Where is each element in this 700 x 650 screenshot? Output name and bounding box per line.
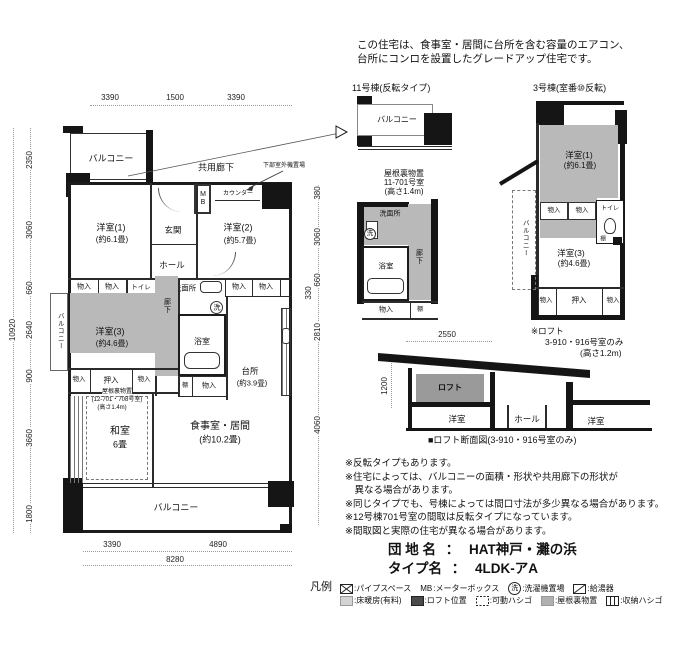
dim-left-total: 10920 — [9, 318, 17, 342]
kitchen-label: 台所 — [241, 367, 258, 376]
legend-movable-ladder: :可動ハシゴ — [476, 595, 532, 606]
legend-mb-key: MB — [420, 584, 432, 593]
wall — [63, 126, 83, 133]
japanese-room-label: 和室 — [110, 427, 130, 437]
corridor-label: 廊下 — [416, 249, 423, 265]
western3-size: (約4.6畳) — [558, 260, 590, 268]
wall — [90, 368, 91, 392]
attic-shade — [155, 276, 178, 376]
type-name-row: タイプ名 ： 4LDK-アA — [388, 560, 538, 578]
estate-name-value: HAT神戸・灘の浜 — [469, 542, 577, 557]
closet-label: 物入 — [540, 298, 553, 305]
wall — [545, 405, 547, 430]
note-line: ※間取図と実際の住宅が異なる場合があります。 — [345, 526, 552, 539]
wall — [536, 101, 624, 105]
wall — [150, 244, 196, 245]
shelf-label: 棚 — [600, 237, 606, 243]
entrance-label: 玄関 — [164, 226, 181, 235]
wall — [358, 149, 452, 150]
loft-note-1: ※ロフト — [531, 326, 564, 337]
closet-label: 物入 — [607, 298, 620, 305]
window-line — [83, 487, 268, 488]
wall — [68, 278, 292, 280]
separator: ： — [446, 561, 472, 576]
floor-heating-icon — [340, 596, 353, 606]
dim-bottom-total: 8280 — [165, 556, 185, 564]
dim-line-bottom-total — [83, 565, 292, 566]
note-line: 異なる場合があります。 — [345, 485, 458, 498]
balcony-side-label: バルコニー — [521, 219, 528, 257]
storage-ladder-icon — [606, 596, 619, 606]
wall — [613, 237, 622, 245]
dim-right-5: 2810 — [314, 322, 322, 342]
legend-mb-label: :メーターボックス — [433, 583, 499, 594]
legend-washer-label: :洗濯機置場 — [522, 583, 564, 594]
closet-label: 物入 — [73, 377, 86, 384]
wall — [408, 368, 412, 430]
wall — [226, 296, 228, 400]
hall-label: ホール — [159, 261, 185, 270]
closet-label: 物入 — [202, 383, 216, 390]
wall — [556, 287, 557, 315]
common-corridor-label: 共用廊下 — [198, 164, 234, 173]
loft-floor — [412, 402, 490, 407]
water-heater-icon — [573, 584, 586, 594]
wall — [507, 405, 509, 430]
wall — [536, 287, 624, 289]
pillar — [280, 524, 292, 533]
section-western2-label: 洋室 — [587, 417, 604, 426]
western3-label: 洋室(3) — [96, 328, 125, 337]
corridor-label: 廊下 — [164, 298, 171, 314]
wall — [362, 301, 438, 303]
dim-right-4: 330 — [305, 285, 313, 300]
movable-ladder-icon — [476, 596, 489, 606]
legend-ladder1-label: :可動ハシゴ — [490, 595, 532, 606]
wall — [566, 382, 573, 430]
wall — [225, 278, 226, 296]
legend-loft-position: :ロフト位置 — [411, 595, 467, 606]
dim-left-1: 2350 — [26, 150, 34, 170]
loft-label: ロフト — [438, 384, 462, 392]
estate-name-label: 団 地 名 — [388, 542, 436, 557]
header-note-line2: 台所にコンロを設置したグレードアップ住宅です。 — [357, 52, 597, 66]
dim-left-5: 900 — [26, 368, 34, 383]
washroom-label: 洗面所 — [380, 211, 401, 218]
pillar — [424, 113, 452, 145]
wall — [280, 278, 281, 296]
dim-right-2: 3060 — [314, 227, 322, 247]
dim-line-loft-height — [391, 360, 392, 408]
wall — [225, 296, 292, 297]
toilet-label: トイレ — [131, 285, 151, 292]
leader-line — [128, 132, 345, 176]
dim-loft-height: 1200 — [381, 376, 389, 396]
legend-washer-place: 洗 :洗濯機置場 — [508, 582, 564, 595]
washer-label: 洗 — [367, 231, 374, 238]
kitchen-counter — [281, 308, 291, 396]
window-line — [83, 483, 268, 484]
attic-note-2: (12-701・708号室) — [92, 397, 143, 403]
dim-left-7: 1800 — [26, 504, 34, 524]
section-western-label: 洋室 — [448, 415, 465, 424]
bathtub — [184, 352, 220, 369]
legend-title: 凡例 — [310, 580, 332, 595]
closet-label: 物入 — [77, 284, 91, 291]
pipe-space-icon — [340, 584, 353, 594]
kitchen-size: (約3.9畳) — [237, 379, 267, 387]
dim-left-3: 660 — [26, 280, 34, 295]
legend-attic-label: :屋根裏物置 — [555, 595, 597, 606]
closet-label: 物入 — [105, 284, 119, 291]
type-name-label: タイプ名 — [388, 561, 442, 576]
dining-size: (約10.2畳) — [199, 436, 241, 445]
closet-label: 物入 — [138, 377, 151, 384]
legend-storage-ladder: :収納ハシゴ — [606, 595, 662, 606]
note-line: ※同じタイプでも、号棟によっては間口寸法が多少異なる場合があります。 — [345, 499, 664, 512]
pillar — [268, 481, 294, 507]
loft-section-caption: ■ロフト断面図(3-910・916号室のみ) — [428, 434, 576, 446]
legend-water-heater: :給湯器 — [573, 583, 613, 594]
shelf-label: 棚 — [182, 383, 188, 389]
dim-top-2: 1500 — [165, 94, 185, 102]
dim-line-bottom — [83, 551, 292, 552]
ceiling — [573, 400, 650, 405]
loft-note-2: 3-910・916号室のみ — [545, 337, 623, 348]
wall — [152, 392, 154, 487]
wall — [490, 372, 495, 430]
wall — [358, 146, 452, 147]
dim-right-6: 4060 — [314, 415, 322, 435]
kitchen-sink — [282, 328, 290, 344]
wall — [178, 396, 226, 397]
note-line: ※12号棟701号室の間取は反転タイプになっています。 — [345, 512, 577, 525]
attic11-note-2: 11-701号室 — [384, 179, 424, 187]
attic-note-3: (高さ1.4m) — [97, 405, 126, 411]
bathroom-label: 浴室 — [379, 262, 394, 270]
dim-left-6: 3660 — [26, 428, 34, 448]
building11-title: 11号棟(反転タイプ) — [352, 82, 430, 94]
wall — [410, 301, 411, 318]
legend-ladder2-label: :収納ハシゴ — [620, 595, 662, 606]
dim-top-1: 3390 — [100, 94, 120, 102]
wall — [196, 183, 198, 278]
wall — [252, 278, 253, 296]
type-name-value: 4LDK-アA — [475, 561, 538, 576]
legend-floor-heating: :床暖房(有料) — [340, 595, 402, 606]
dim-left-2: 3060 — [26, 220, 34, 240]
counter-line — [215, 200, 260, 201]
note-line: ※反転タイプもあります。 — [345, 458, 457, 471]
hollow-arrow-icon — [336, 126, 347, 138]
meter-box-label: MB — [200, 191, 207, 207]
counter-label: カウンター — [223, 191, 253, 197]
attic-storage-icon — [541, 596, 554, 606]
note-line: ※住宅によっては、バルコニーの面積・形状や共用廊下の形状が — [345, 472, 618, 485]
western3-label: 洋室(3) — [557, 249, 584, 258]
closet-label: 物入 — [259, 284, 273, 291]
attic-note-1: 屋根裏物置 — [102, 389, 132, 395]
building3-title: 3号棟(室番⑩反転) — [533, 82, 606, 94]
western1-label: 洋室(1) — [565, 151, 592, 160]
western3-size: (約4.6畳) — [96, 340, 128, 348]
washer-label: 洗 — [214, 305, 221, 312]
washer-circle-icon: 洗 — [508, 582, 521, 595]
dim-left-4: 2640 — [26, 320, 34, 340]
western1-size: (約6.1畳) — [564, 162, 596, 170]
pillar — [63, 478, 83, 533]
dim-right-3: 660 — [314, 272, 322, 287]
bathroom-label: 浴室 — [194, 338, 210, 346]
legend-pipe-space-label: :パイプスペース — [354, 583, 411, 594]
western1-size: (約6.1畳) — [96, 236, 128, 244]
oshiire-label: 押入 — [572, 296, 587, 304]
legend-floorheat-label: :床暖房(有料) — [354, 595, 402, 606]
legend-attic-storage: :屋根裏物置 — [541, 595, 597, 606]
wall — [132, 368, 133, 392]
pillar — [262, 183, 292, 209]
floorplan-page: この住宅は、食事室・居間に台所を含む容量のエアコン、 台所にコンロを設置したグレ… — [0, 0, 700, 650]
bathtub — [367, 278, 404, 294]
japanese-room-size: 6畳 — [113, 441, 127, 450]
attic11-note-3: (高さ1.4m) — [384, 188, 423, 196]
balcony-bottom-label: バルコニー — [154, 504, 199, 513]
legend-pipe-space: :パイプスペース — [340, 583, 411, 594]
wall — [431, 199, 438, 304]
legend-heater-label: :給湯器 — [587, 583, 613, 594]
sink — [200, 281, 222, 293]
wall — [150, 183, 152, 278]
tatami-edge — [70, 396, 84, 483]
balcony-strut — [500, 161, 538, 184]
closet-label: 物入 — [576, 208, 589, 215]
floor — [406, 428, 652, 431]
wall — [362, 318, 438, 320]
balcony-left-label: バルコニー — [56, 312, 63, 350]
toilet-label: トイレ — [601, 206, 619, 212]
western1-label: 洋室(1) — [97, 224, 126, 233]
separator: ： — [440, 542, 466, 557]
dim-line-top — [90, 105, 292, 106]
dining-label: 食事室・居間 — [190, 422, 250, 432]
estate-name-row: 団 地 名 ： HAT神戸・灘の浜 — [388, 541, 577, 559]
loft-position-icon — [411, 596, 424, 606]
header-note-line1: この住宅は、食事室・居間に台所を含む容量のエアコン、 — [357, 38, 629, 52]
legend-meter-box: MB :メーターボックス — [420, 583, 499, 594]
dim-line-loft-width — [406, 341, 492, 342]
toilet-bowl — [604, 218, 616, 234]
legend-row-2: :床暖房(有料) :ロフト位置 :可動ハシゴ :屋根裏物置 :収納ハシゴ — [340, 595, 663, 606]
legend-row-1: :パイプスペース MB :メーターボックス 洗 :洗濯機置場 :給湯器 — [340, 582, 614, 595]
dim-loft-width: 2550 — [437, 331, 457, 339]
outdoor-unit-label: 下部室外機置場 — [263, 163, 305, 169]
dim-top-3: 3390 — [226, 94, 246, 102]
loft-note-3: (高さ1.2m) — [580, 348, 622, 359]
oshiire-label: 押入 — [104, 376, 119, 384]
dim-bottom-2: 4890 — [208, 541, 228, 549]
balcony-top-label: バルコニー — [89, 155, 134, 164]
legend-loftpos-label: :ロフト位置 — [425, 595, 467, 606]
closet-label: 物入 — [379, 307, 393, 314]
western2-size: (約5.7畳) — [224, 237, 256, 245]
wall — [178, 376, 226, 377]
wall — [192, 376, 193, 396]
dim-right-1: 380 — [314, 185, 322, 200]
closet-label: 物入 — [548, 208, 561, 215]
closet-label: 物入 — [232, 284, 246, 291]
wall — [531, 315, 625, 320]
attic11-note-1: 屋根裏物置 — [384, 170, 424, 178]
wall — [68, 368, 178, 370]
wall — [602, 287, 603, 315]
section-hall-label: ホール — [514, 415, 540, 424]
balcony-mini-label: バルコニー — [377, 116, 417, 124]
western2-label: 洋室(2) — [224, 224, 253, 233]
shelf-label: 棚 — [417, 307, 423, 313]
dim-bottom-1: 3390 — [102, 541, 122, 549]
